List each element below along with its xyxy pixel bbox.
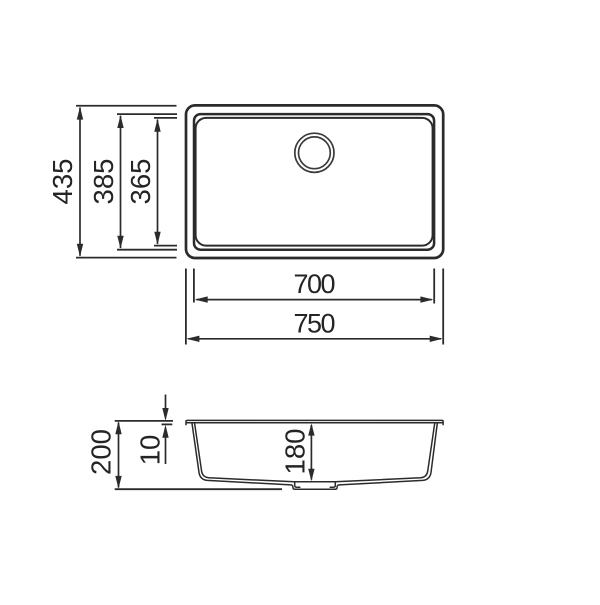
svg-text:180: 180 [280,429,311,475]
svg-text:700: 700 [294,269,335,299]
svg-text:750: 750 [294,309,335,339]
svg-text:385: 385 [88,159,119,205]
svg-text:200: 200 [86,429,117,475]
svg-text:365: 365 [125,159,156,205]
svg-text:10: 10 [135,435,166,466]
svg-text:435: 435 [47,159,78,205]
